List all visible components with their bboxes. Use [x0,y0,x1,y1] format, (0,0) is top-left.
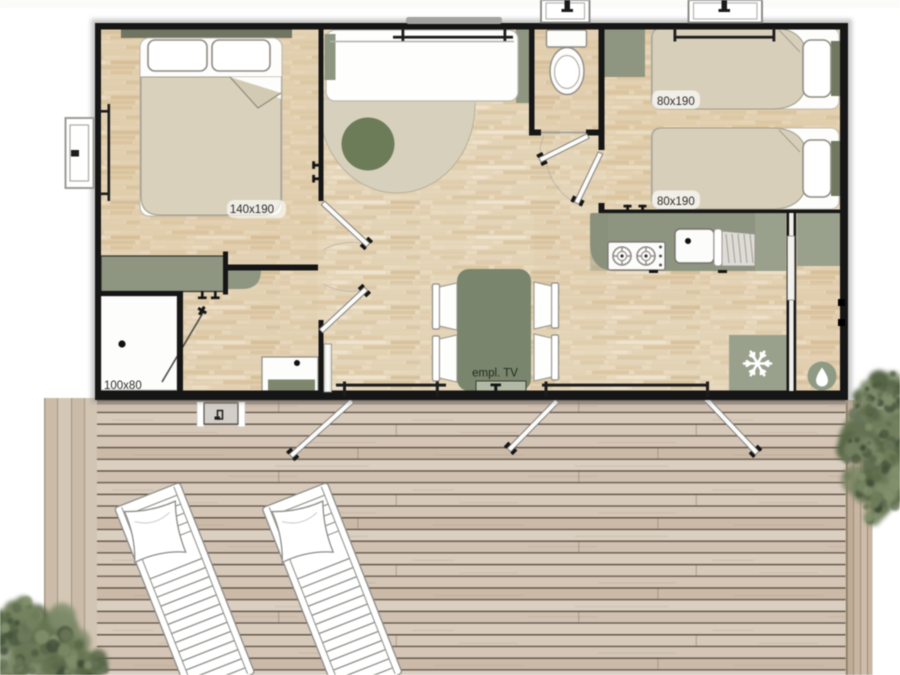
svg-text:100x80: 100x80 [104,380,142,392]
svg-text:140x190: 140x190 [230,204,274,216]
svg-text:empl. TV: empl. TV [472,368,518,380]
svg-text:80x190: 80x190 [657,196,695,208]
svg-text:80x190: 80x190 [657,96,695,108]
